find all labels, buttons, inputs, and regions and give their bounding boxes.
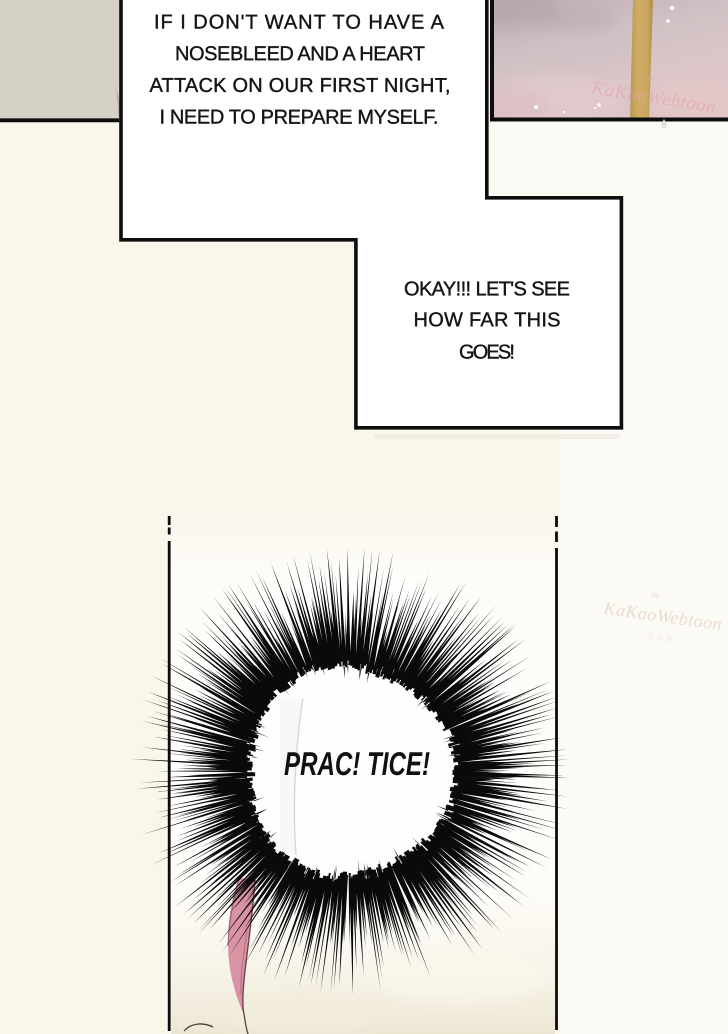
svg-text:GOES!: GOES!: [459, 341, 515, 363]
svg-text:in: in: [650, 589, 659, 601]
svg-text:IF I DON'T WANT TO HAVE A: IF I DON'T WANT TO HAVE A: [154, 12, 445, 34]
svg-text:I NEED TO PREPARE MYSELF.: I NEED TO PREPARE MYSELF.: [159, 107, 438, 129]
svg-text:HOW FAR THIS: HOW FAR THIS: [413, 309, 560, 331]
svg-text:PRAC! TICE!: PRAC! TICE!: [284, 745, 430, 782]
svg-text:OKAY!!! LET'S SEE: OKAY!!! LET'S SEE: [404, 278, 570, 300]
svg-text:ATTACK ON OUR FIRST NIGHT,: ATTACK ON OUR FIRST NIGHT,: [149, 75, 450, 97]
svg-text:NOSEBLEED AND A HEART: NOSEBLEED AND A HEART: [175, 43, 425, 65]
